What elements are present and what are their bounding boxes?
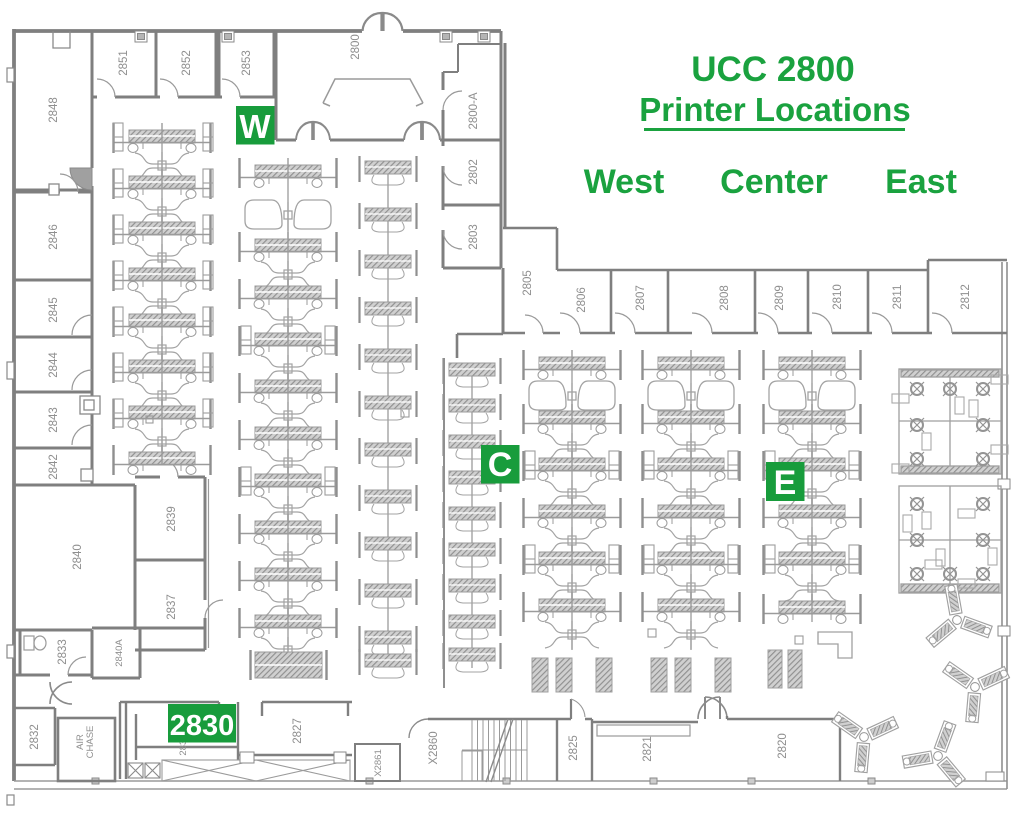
svg-text:2802: 2802 [468,159,480,185]
svg-text:2830: 2830 [170,710,235,742]
svg-text:2800: 2800 [350,34,362,60]
svg-text:East: East [885,163,957,201]
svg-text:2803: 2803 [468,224,480,250]
svg-text:2846: 2846 [48,224,60,250]
svg-text:2810: 2810 [832,284,844,310]
svg-text:2808: 2808 [719,285,731,311]
svg-text:2851: 2851 [118,50,130,76]
svg-text:C: C [488,446,513,484]
svg-text:2807: 2807 [635,285,647,311]
svg-text:2845: 2845 [48,297,60,323]
svg-text:2825: 2825 [568,735,580,761]
svg-text:2800-A: 2800-A [468,92,480,129]
svg-text:2840A: 2840A [114,639,125,667]
svg-text:2844: 2844 [48,352,60,378]
svg-text:2806: 2806 [576,287,588,313]
svg-text:2837: 2837 [166,594,178,620]
svg-text:2805: 2805 [522,270,534,296]
svg-text:2833: 2833 [57,639,69,665]
svg-text:2848: 2848 [48,97,60,123]
svg-text:2827: 2827 [292,718,304,744]
svg-text:2853: 2853 [241,50,253,76]
svg-text:Center: Center [720,163,828,201]
svg-text:2840: 2840 [72,544,84,570]
svg-text:West: West [584,163,665,201]
svg-text:2821: 2821 [642,736,654,762]
svg-text:X2861: X2861 [373,749,384,776]
svg-text:2852: 2852 [181,50,193,76]
svg-text:X2860: X2860 [428,731,440,764]
svg-text:2820: 2820 [777,733,789,759]
svg-text:2811: 2811 [892,285,904,310]
svg-text:UCC 2800: UCC 2800 [691,50,854,89]
svg-text:2809: 2809 [774,285,786,311]
svg-text:2839: 2839 [166,506,178,532]
svg-text:2842: 2842 [48,454,60,480]
svg-text:2843: 2843 [48,407,60,433]
svg-text:2832: 2832 [29,724,41,750]
svg-text:2812: 2812 [960,284,972,310]
svg-text:CHASE: CHASE [85,726,96,759]
svg-text:E: E [774,464,797,502]
svg-text:W: W [239,108,271,145]
svg-text:Printer Locations: Printer Locations [639,91,910,128]
